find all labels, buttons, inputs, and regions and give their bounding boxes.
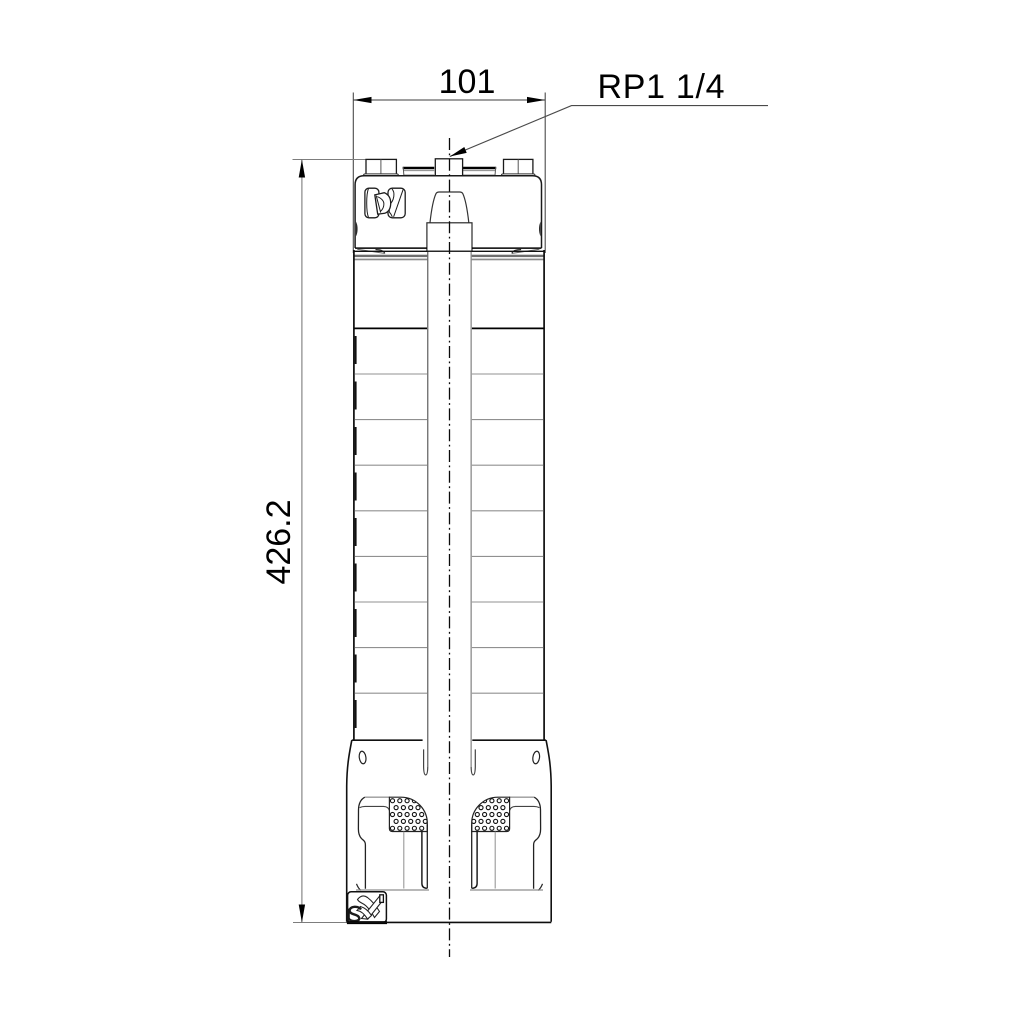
svg-text:426.2: 426.2 — [260, 499, 298, 584]
svg-text:101: 101 — [439, 63, 496, 101]
svg-text:RP1 1/4: RP1 1/4 — [598, 68, 726, 106]
